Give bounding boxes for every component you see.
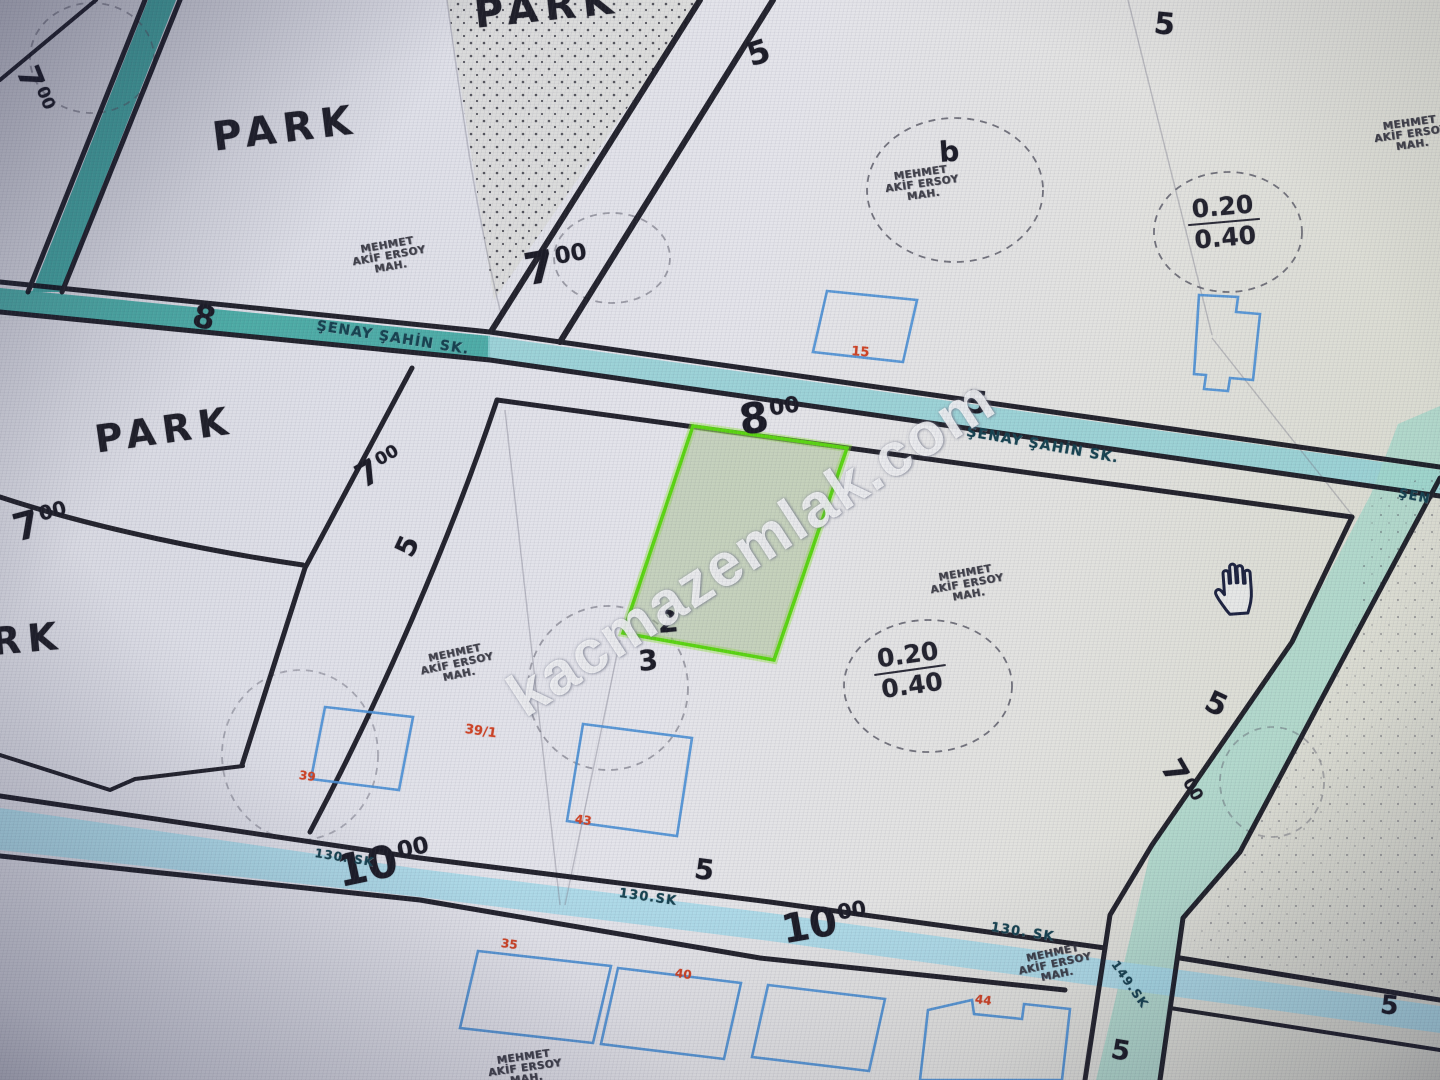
- block-number-sup: 00: [768, 392, 802, 421]
- red-parcel-number: 40: [674, 966, 692, 982]
- density-bottom: 0.40: [1188, 218, 1262, 255]
- block-number-sup: 00: [36, 497, 69, 526]
- street-width-number: 5: [1379, 990, 1400, 1022]
- red-parcel-number: 15: [851, 344, 870, 361]
- block-number-base: 8: [736, 392, 772, 445]
- map-viewport[interactable]: PARK PARK PARK PARK 700 800 700 700 700 …: [0, 0, 1440, 1080]
- red-parcel-number: 44: [974, 992, 992, 1008]
- density-label: 0.20 0.40: [870, 635, 949, 704]
- density-top: 0.20: [1186, 189, 1260, 224]
- street-width-number: 5: [1152, 6, 1176, 43]
- density-label: 0.20 0.40: [1186, 189, 1263, 255]
- block-number-sup: 00: [835, 896, 868, 925]
- red-parcel-number: 35: [500, 936, 518, 952]
- block-number-base: 10: [778, 898, 841, 953]
- red-parcel-number: 43: [574, 812, 592, 828]
- block-number-sup: 00: [395, 832, 432, 864]
- hand-cursor-icon: [1206, 554, 1260, 619]
- red-parcel-number: 39: [298, 768, 316, 784]
- block-number-sup: 00: [553, 239, 589, 270]
- block-number: 800: [736, 387, 804, 444]
